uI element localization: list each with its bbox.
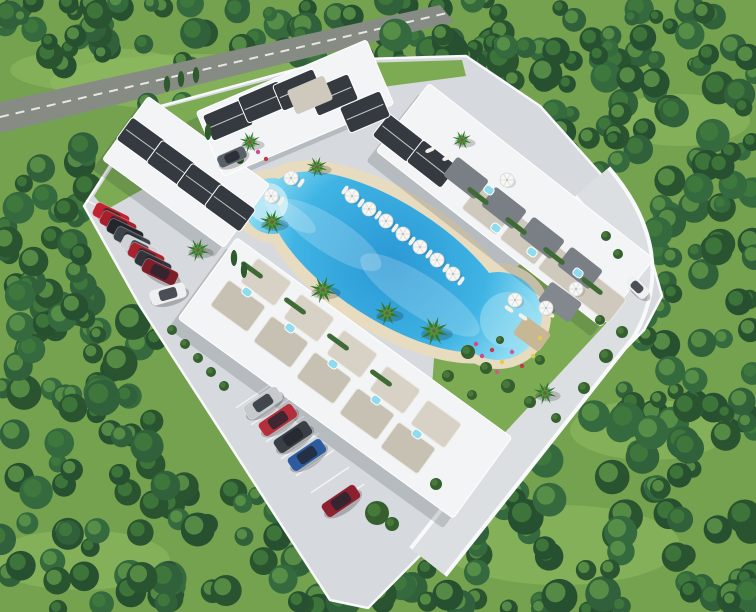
flower-bed — [480, 354, 484, 358]
flower-bed — [538, 336, 542, 340]
aerial-development-render — [0, 0, 756, 612]
flower-bed — [256, 150, 260, 154]
cypress-tree — [193, 67, 199, 83]
aerial-render-stage — [0, 0, 756, 612]
flower-bed — [520, 364, 524, 368]
flower-bed — [264, 157, 268, 161]
cypress-tree — [205, 124, 211, 140]
flower-bed — [531, 354, 535, 358]
flower-bed — [474, 342, 478, 346]
cypress-tree — [164, 76, 170, 92]
flower-bed — [510, 350, 514, 354]
flower-bed — [495, 370, 499, 374]
flower-bed — [500, 360, 504, 364]
cypress-tree — [241, 262, 247, 278]
cypress-tree — [178, 71, 184, 87]
cypress-tree — [231, 250, 237, 266]
flower-bed — [490, 348, 494, 352]
